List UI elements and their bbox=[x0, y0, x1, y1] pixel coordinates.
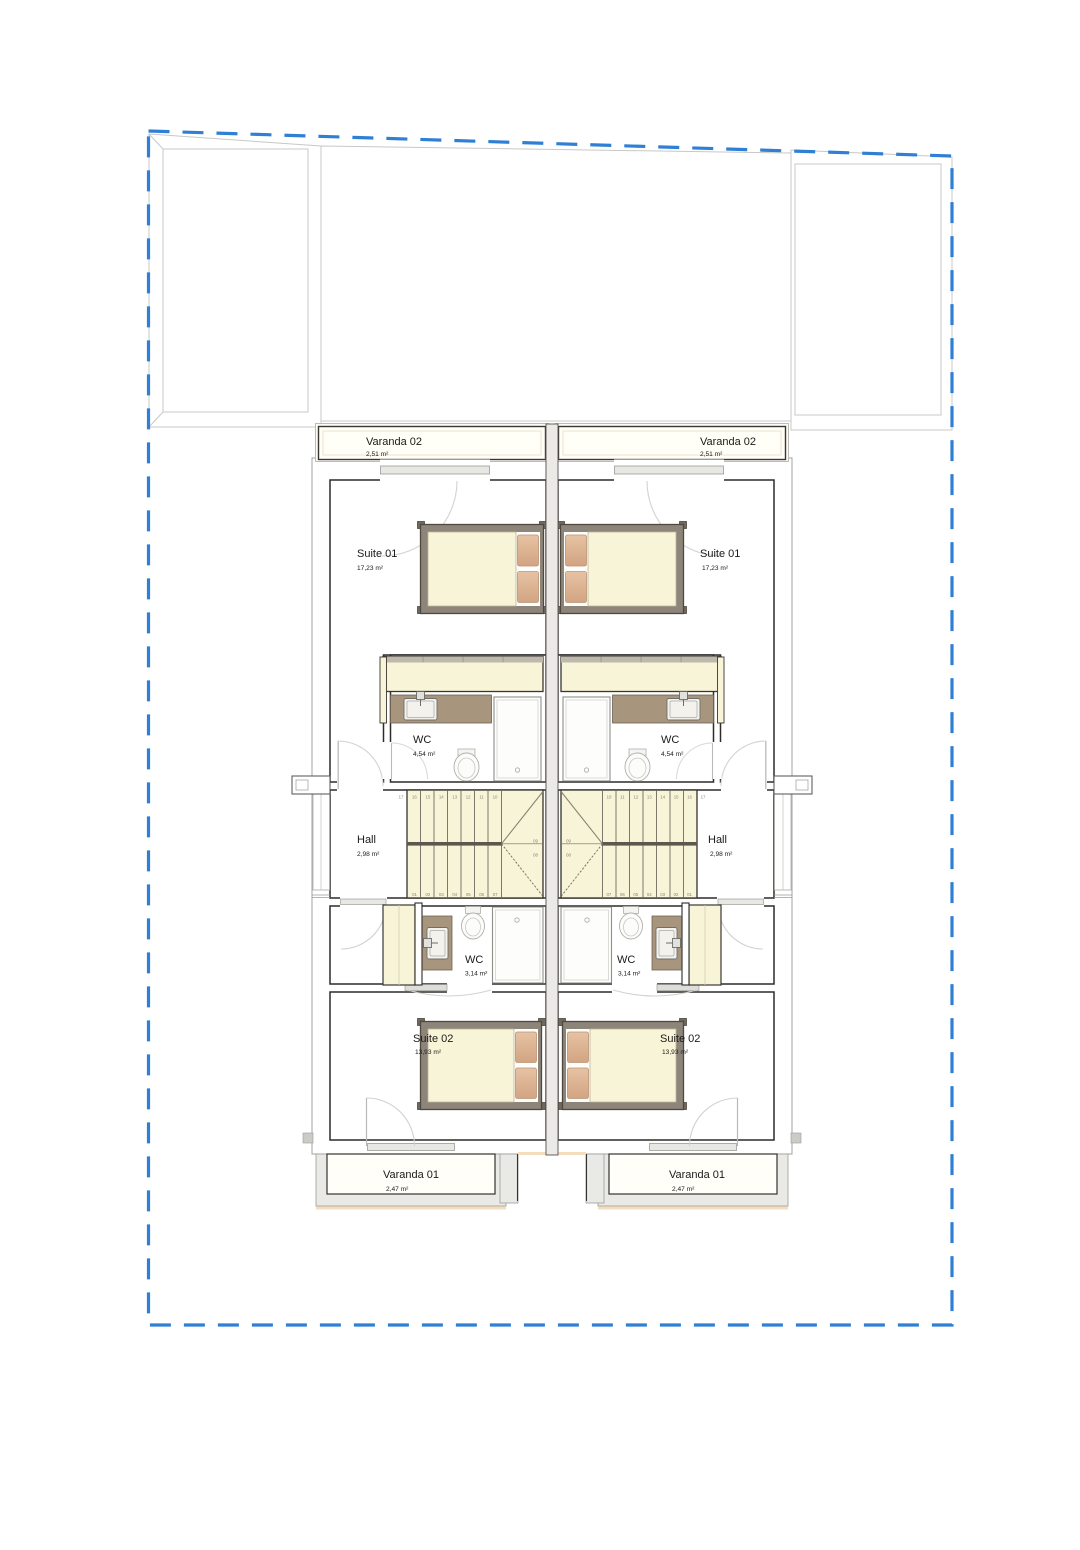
stair-tread-number: 03 bbox=[660, 892, 665, 897]
room-label-hall-left: Hall bbox=[357, 834, 376, 846]
stair-tread-number: 11 bbox=[479, 795, 484, 800]
stair-tread-number: 17 bbox=[399, 795, 404, 800]
room-area-wc1-right: 4,54 m² bbox=[661, 751, 684, 758]
stair-tread-number: 09 bbox=[566, 839, 571, 844]
stair-tread-number: 04 bbox=[452, 892, 457, 897]
room-label-varanda01-right: Varanda 01 bbox=[669, 1169, 725, 1181]
room-area-varanda02-right: 2,51 m² bbox=[700, 451, 723, 458]
stair-tread-number: 15 bbox=[425, 795, 430, 800]
room-area-hall-right: 2,98 m² bbox=[710, 851, 733, 858]
stair-tread-number: 06 bbox=[479, 892, 484, 897]
room-label-suite01-left: Suite 01 bbox=[357, 548, 397, 560]
room-label-varanda02-left: Varanda 02 bbox=[366, 436, 422, 448]
room-area-suite01-left: 17,23 m² bbox=[357, 565, 384, 572]
room-label-wc2-left: WC bbox=[465, 954, 483, 966]
floor-plan-drawing: Varanda 02 2,51 m² Suite 01 17,23 m² WC … bbox=[0, 0, 1080, 1550]
room-area-hall-left: 2,98 m² bbox=[357, 851, 380, 858]
stair-tread-number: 09 bbox=[533, 839, 538, 844]
stair-tread-number: 02 bbox=[426, 892, 431, 897]
room-label-hall-right: Hall bbox=[708, 834, 727, 846]
roof-outlines bbox=[149, 134, 952, 430]
stair-tread-number: 06 bbox=[620, 892, 625, 897]
stair-tread-number: 03 bbox=[439, 892, 444, 897]
stair-tread-number: 01 bbox=[412, 892, 417, 897]
stair-tread-number: 04 bbox=[647, 892, 652, 897]
room-area-suite02-right: 13,93 m² bbox=[662, 1049, 689, 1056]
stair-tread-number: 07 bbox=[493, 892, 498, 897]
room-label-wc1-left: WC bbox=[413, 734, 431, 746]
room-label-wc2-right: WC bbox=[617, 954, 635, 966]
room-area-suite01-right: 17,23 m² bbox=[702, 565, 729, 572]
room-area-wc2-right: 3,14 m² bbox=[618, 971, 641, 978]
stair-tread-number: 13 bbox=[452, 795, 457, 800]
room-area-wc1-left: 4,54 m² bbox=[413, 751, 436, 758]
unit-left bbox=[292, 424, 558, 1210]
unit-right bbox=[546, 424, 812, 1210]
stair-tread-number: 15 bbox=[674, 795, 679, 800]
stair-tread-number: 07 bbox=[607, 892, 612, 897]
stair-tread-number: 11 bbox=[620, 795, 625, 800]
stair-tread-number: 14 bbox=[439, 795, 444, 800]
stair-tread-number: 02 bbox=[674, 892, 679, 897]
room-label-suite02-right: Suite 02 bbox=[660, 1033, 700, 1045]
room-area-varanda01-left: 2,47 m² bbox=[386, 1186, 409, 1193]
stair-tread-number: 14 bbox=[660, 795, 665, 800]
stair-tread-number: 16 bbox=[687, 795, 692, 800]
room-area-wc2-left: 3,14 m² bbox=[465, 971, 488, 978]
stair-tread-number: 12 bbox=[633, 795, 638, 800]
floor-plan-canvas: Varanda 02 2,51 m² Suite 01 17,23 m² WC … bbox=[0, 0, 1080, 1550]
stair-tread-number: 10 bbox=[607, 795, 612, 800]
stair-tread-number: 01 bbox=[687, 892, 692, 897]
stair-tread-number: 10 bbox=[493, 795, 498, 800]
room-label-suite02-left: Suite 02 bbox=[413, 1033, 453, 1045]
stair-tread-number: 05 bbox=[633, 892, 638, 897]
room-area-varanda01-right: 2,47 m² bbox=[672, 1186, 695, 1193]
room-area-suite02-left: 13,93 m² bbox=[415, 1049, 442, 1056]
stair-tread-number: 17 bbox=[701, 795, 706, 800]
party-wall bbox=[546, 424, 558, 1155]
stair-tread-number: 12 bbox=[466, 795, 471, 800]
room-label-wc1-right: WC bbox=[661, 734, 679, 746]
stair-tread-number: 05 bbox=[466, 892, 471, 897]
room-label-varanda02-right: Varanda 02 bbox=[700, 436, 756, 448]
stair-tread-number: 08 bbox=[566, 853, 571, 858]
room-label-varanda01-left: Varanda 01 bbox=[383, 1169, 439, 1181]
stair-tread-number: 16 bbox=[412, 795, 417, 800]
stair-tread-number: 13 bbox=[647, 795, 652, 800]
stair-tread-number: 08 bbox=[533, 853, 538, 858]
room-label-suite01-right: Suite 01 bbox=[700, 548, 740, 560]
room-area-varanda02-left: 2,51 m² bbox=[366, 451, 389, 458]
